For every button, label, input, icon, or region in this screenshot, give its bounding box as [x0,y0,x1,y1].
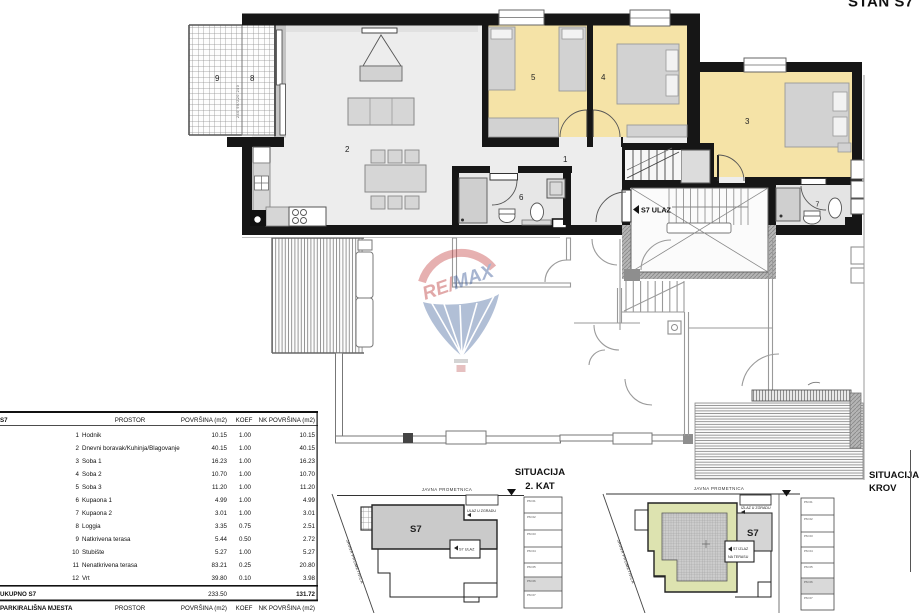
svg-text:1.00: 1.00 [239,471,252,478]
svg-text:3.01: 3.01 [303,510,316,517]
svg-text:83.21: 83.21 [212,562,228,569]
svg-text:PM 06: PM 06 [527,579,536,583]
svg-text:6: 6 [76,497,80,504]
svg-text:0.50: 0.50 [239,536,252,543]
svg-text:Soba 2: Soba 2 [82,471,102,478]
svg-text:PM 02: PM 02 [804,517,813,521]
svg-text:16.23: 16.23 [212,458,228,465]
svg-text:11: 11 [73,562,80,569]
svg-text:4: 4 [601,73,606,82]
svg-text:PM 04: PM 04 [527,549,536,553]
svg-text:Dnevni boravak/Kuhinja/Blagova: Dnevni boravak/Kuhinja/Blagovanje [82,445,180,452]
svg-text:0.25: 0.25 [239,562,252,569]
svg-text:JAVNA PROMETNICA: JAVNA PROMETNICA [422,487,472,492]
svg-text:9: 9 [215,74,220,83]
svg-text:3.01: 3.01 [215,510,228,517]
svg-text:PM 07: PM 07 [527,593,536,597]
svg-text:STAN S7: STAN S7 [848,0,914,11]
svg-text:PM 07: PM 07 [804,596,813,600]
svg-text:Soba 3: Soba 3 [82,484,102,491]
svg-text:16.23: 16.23 [300,458,316,465]
svg-text:Natkrivena terasa: Natkrivena terasa [82,536,131,543]
svg-text:Kupaona 2: Kupaona 2 [82,510,112,517]
svg-text:3.98: 3.98 [303,575,316,582]
svg-text:JAVNA PROMETNICA: JAVNA PROMETNICA [694,486,744,491]
svg-text:SITUACIJA: SITUACIJA [869,470,919,481]
svg-text:5.27: 5.27 [215,549,228,556]
svg-text:0.10: 0.10 [239,575,252,582]
svg-text:5.44: 5.44 [215,536,228,543]
svg-text:8: 8 [76,523,80,530]
svg-text:5: 5 [76,484,80,491]
svg-text:40.15: 40.15 [212,445,228,452]
svg-text:11.20: 11.20 [212,484,228,491]
svg-text:S7 IZLAZ: S7 IZLAZ [733,547,749,551]
svg-text:3.35: 3.35 [215,523,228,530]
svg-text:7: 7 [816,202,820,209]
svg-text:4.99: 4.99 [215,497,228,504]
svg-text:PROSTOR: PROSTOR [115,417,146,424]
svg-text:2.72: 2.72 [303,536,316,543]
svg-text:233.50: 233.50 [208,591,227,598]
svg-text:ULAZ U ZGRADU: ULAZ U ZGRADU [467,509,496,513]
svg-text:4.99: 4.99 [303,497,316,504]
svg-text:2: 2 [76,445,80,452]
svg-text:6: 6 [519,193,524,202]
svg-text:SITUACIJA: SITUACIJA [515,467,565,478]
svg-text:10: 10 [72,549,79,556]
svg-text:1.00: 1.00 [239,549,252,556]
svg-text:PM 06: PM 06 [804,580,813,584]
svg-text:10.15: 10.15 [212,432,228,439]
svg-text:3: 3 [76,458,80,465]
svg-text:NK POVRŠINA (m2): NK POVRŠINA (m2) [259,605,315,612]
svg-text:KOEF: KOEF [236,417,253,424]
svg-text:S7: S7 [0,417,8,424]
svg-text:PM 04: PM 04 [804,549,813,553]
svg-text:240 90/220 240: 240 90/220 240 [236,85,240,118]
svg-text:9: 9 [76,536,80,543]
svg-text:4: 4 [76,471,80,478]
svg-text:POVRŠINA (m2): POVRŠINA (m2) [181,417,227,424]
svg-text:Vrt: Vrt [82,575,90,582]
svg-text:20.80: 20.80 [300,562,316,569]
svg-text:NK POVRŠINA (m2): NK POVRŠINA (m2) [259,417,315,424]
svg-text:1.00: 1.00 [239,484,252,491]
svg-text:5.27: 5.27 [303,549,316,556]
svg-text:2. KAT: 2. KAT [525,481,555,492]
svg-text:7: 7 [76,510,80,517]
svg-text:PM 03: PM 03 [804,534,813,538]
svg-text:Stubište: Stubište [82,549,105,556]
svg-text:40.15: 40.15 [300,445,316,452]
svg-text:POVRŠINA (m2): POVRŠINA (m2) [181,605,227,612]
svg-text:S7: S7 [747,528,759,539]
svg-text:2.51: 2.51 [303,523,316,530]
svg-text:1: 1 [563,155,568,164]
svg-text:PARKIRALIŠNA MJESTA: PARKIRALIŠNA MJESTA [0,604,73,612]
svg-text:PM 01: PM 01 [804,500,813,504]
svg-text:1.00: 1.00 [239,497,252,504]
svg-text:2: 2 [345,145,350,154]
svg-text:PM 01: PM 01 [527,499,536,503]
svg-text:11.20: 11.20 [300,484,316,491]
svg-text:1.00: 1.00 [239,458,252,465]
svg-text:UKUPNO S7: UKUPNO S7 [0,591,37,598]
svg-text:Kupaona 1: Kupaona 1 [82,497,112,504]
svg-text:Hodnik: Hodnik [82,432,102,439]
svg-text:PROSTOR: PROSTOR [115,605,146,612]
svg-text:IZLAZ U ZGRADU: IZLAZ U ZGRADU [741,506,771,510]
svg-text:Loggia: Loggia [82,523,101,530]
svg-text:S7 ULAZ: S7 ULAZ [641,206,672,215]
svg-text:5: 5 [531,73,536,82]
svg-text:39.80: 39.80 [212,575,228,582]
svg-text:Soba 1: Soba 1 [82,458,102,465]
svg-text:3: 3 [745,117,750,126]
svg-text:1.00: 1.00 [239,432,252,439]
svg-text:12: 12 [72,575,79,582]
svg-text:KOEF: KOEF [236,605,253,612]
svg-text:10.70: 10.70 [212,471,228,478]
svg-text:PM 02: PM 02 [527,515,536,519]
svg-text:S7: S7 [410,524,422,535]
svg-text:8: 8 [250,74,255,83]
svg-text:131.72: 131.72 [296,591,315,598]
svg-text:10.70: 10.70 [300,471,316,478]
svg-text:PM 03: PM 03 [527,532,536,536]
svg-text:1.00: 1.00 [239,510,252,517]
svg-text:0.75: 0.75 [239,523,252,530]
svg-text:NA TERASU: NA TERASU [728,555,749,559]
svg-text:PM 05: PM 05 [804,565,813,569]
svg-text:1: 1 [76,432,80,439]
svg-text:S7 ULAZ: S7 ULAZ [459,548,475,552]
svg-text:KROV: KROV [869,483,897,494]
svg-text:10.15: 10.15 [300,432,316,439]
svg-text:1.00: 1.00 [239,445,252,452]
svg-text:PM 05: PM 05 [527,565,536,569]
svg-text:Nenatkrivena terasa: Nenatkrivena terasa [82,562,138,569]
